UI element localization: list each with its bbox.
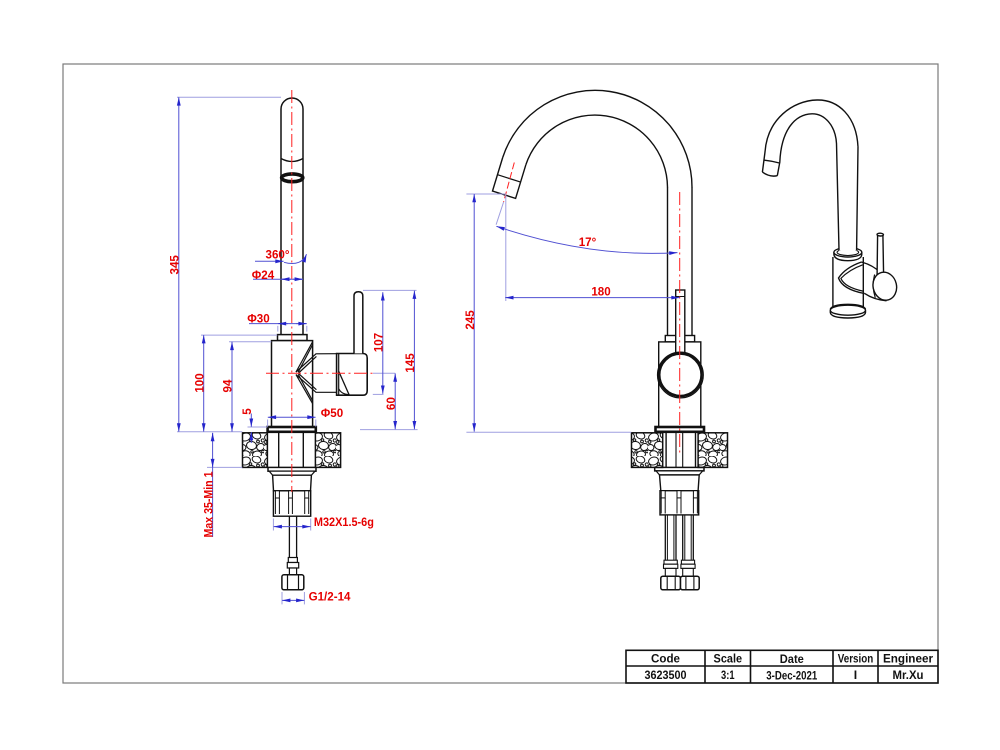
svg-text:145: 145 <box>404 353 417 373</box>
svg-text:Φ30: Φ30 <box>247 313 269 326</box>
svg-text:I: I <box>854 668 857 682</box>
svg-text:100: 100 <box>193 373 206 392</box>
svg-text:180: 180 <box>591 285 610 298</box>
svg-text:Max 35-Min 1: Max 35-Min 1 <box>202 471 215 537</box>
svg-text:Φ50: Φ50 <box>321 407 343 420</box>
svg-text:107: 107 <box>372 333 385 352</box>
svg-text:60: 60 <box>385 397 398 410</box>
svg-text:245: 245 <box>464 310 477 330</box>
svg-text:Date: Date <box>780 652 804 666</box>
svg-text:17°: 17° <box>579 236 597 249</box>
svg-text:3-Dec-2021: 3-Dec-2021 <box>766 668 817 682</box>
svg-text:3:1: 3:1 <box>721 668 735 682</box>
svg-text:345: 345 <box>168 255 181 275</box>
svg-text:360°: 360° <box>266 248 290 261</box>
svg-text:Engineer: Engineer <box>883 652 933 666</box>
svg-text:G1/2-14: G1/2-14 <box>309 591 351 604</box>
svg-text:Code: Code <box>651 652 680 666</box>
svg-text:94: 94 <box>222 379 235 392</box>
svg-text:5: 5 <box>241 408 254 415</box>
svg-text:Scale: Scale <box>714 652 743 666</box>
svg-text:M32X1.5-6g: M32X1.5-6g <box>314 516 374 529</box>
svg-text:Φ24: Φ24 <box>252 269 275 282</box>
svg-text:3623500: 3623500 <box>645 668 687 682</box>
svg-text:Version: Version <box>838 652 874 666</box>
svg-text:Mr.Xu: Mr.Xu <box>893 668 924 682</box>
